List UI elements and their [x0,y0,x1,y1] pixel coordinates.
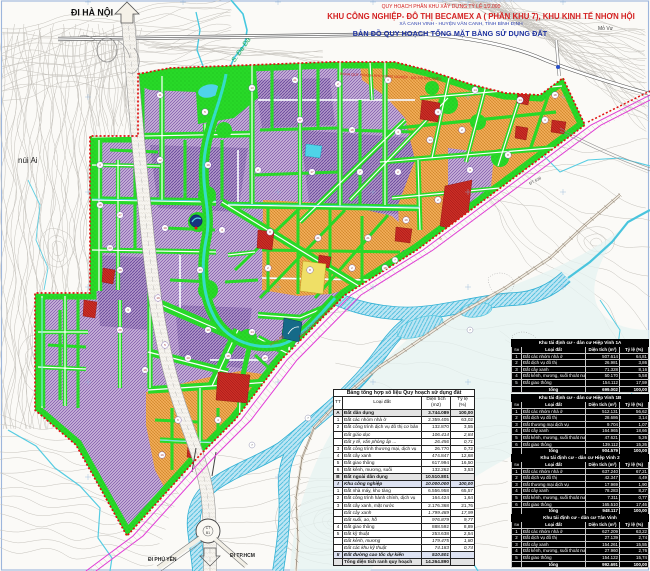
svg-text:12: 12 [158,158,162,162]
svg-text:19: 19 [163,226,167,230]
svg-text:18: 18 [553,93,557,97]
svg-text:21: 21 [316,236,320,240]
svg-text:19: 19 [160,453,164,457]
svg-text:núi Ai: núi Ai [18,156,38,165]
svg-text:27: 27 [263,356,267,360]
svg-text:18: 18 [98,203,102,207]
svg-text:ĐI PHÚ YÊN: ĐI PHÚ YÊN [148,555,177,563]
svg-text:14: 14 [250,330,254,334]
svg-text:19: 19 [143,368,147,372]
svg-text:14: 14 [473,88,477,92]
svg-text:14: 14 [428,138,432,142]
svg-text:18: 18 [350,128,354,132]
svg-text:11: 11 [158,93,161,97]
svg-text:21: 21 [366,236,370,240]
svg-text:10: 10 [206,328,210,332]
svg-text:19: 19 [156,296,160,300]
svg-text:19: 19 [206,163,210,167]
svg-text:27: 27 [118,213,122,217]
svg-text:17: 17 [310,170,314,174]
svg-text:23: 23 [108,246,112,250]
svg-text:13: 13 [250,86,254,90]
svg-text:ĐI TP.HCM: ĐI TP.HCM [230,553,255,559]
svg-text:19: 19 [118,268,122,272]
svg-text:18: 18 [226,354,230,358]
svg-text:21: 21 [293,78,297,82]
svg-text:10: 10 [186,356,190,360]
svg-text:B1: B1 [206,531,210,535]
svg-text:CT: CT [206,526,211,530]
svg-text:14: 14 [518,98,522,102]
svg-text:27: 27 [298,118,302,122]
svg-text:19: 19 [404,218,408,222]
svg-text:13: 13 [198,268,202,272]
svg-text:28: 28 [118,328,122,332]
svg-text:ĐI HÀ NỘI: ĐI HÀ NỘI [71,7,113,18]
